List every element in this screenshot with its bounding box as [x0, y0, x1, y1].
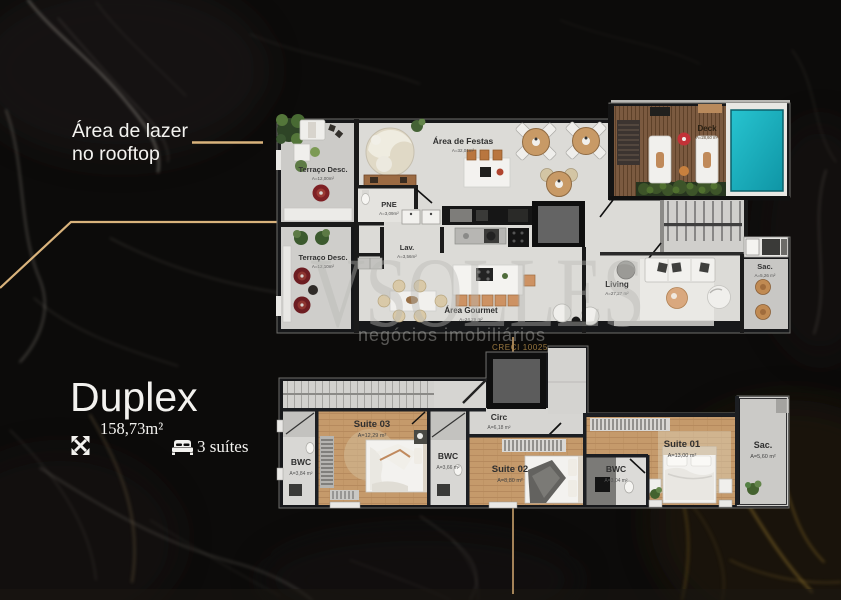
svg-text:Área de lazer: Área de lazer: [72, 119, 188, 142]
svg-text:A=5,26 m²: A=5,26 m²: [755, 273, 776, 278]
svg-text:no rooftop: no rooftop: [72, 143, 160, 165]
svg-text:A=3,84 m²: A=3,84 m²: [289, 471, 313, 477]
svg-text:A=3,04 m²: A=3,04 m²: [604, 478, 628, 484]
svg-text:A=5,60 m²: A=5,60 m²: [750, 454, 776, 460]
svg-text:Sac.: Sac.: [754, 440, 773, 450]
svg-text:Circ: Circ: [491, 412, 508, 422]
svg-text:Deck: Deck: [697, 124, 717, 133]
svg-text:BWC: BWC: [606, 464, 626, 474]
svg-text:BWC: BWC: [438, 451, 458, 461]
svg-text:Sac.: Sac.: [757, 262, 772, 271]
svg-text:A=28,60 m²: A=28,60 m²: [696, 135, 718, 140]
svg-text:CRECI 10025: CRECI 10025: [492, 343, 548, 352]
svg-text:Duplex: Duplex: [70, 374, 198, 420]
svg-text:BWC: BWC: [291, 457, 311, 467]
svg-text:A=13,00 m²: A=13,00 m²: [668, 453, 697, 459]
svg-text:A=32,01m²: A=32,01m²: [452, 148, 475, 153]
svg-text:A=12,00m²: A=12,00m²: [312, 176, 335, 181]
svg-text:A=3,09m²: A=3,09m²: [379, 211, 399, 216]
svg-text:A=12,29 m²: A=12,29 m²: [358, 433, 387, 439]
svg-text:Suite 02: Suite 02: [492, 464, 528, 475]
svg-text:PNE: PNE: [381, 200, 396, 209]
svg-text:158,73m²: 158,73m²: [100, 419, 163, 438]
svg-text:A=3,66 m²: A=3,66 m²: [436, 465, 460, 471]
svg-text:3 suítes: 3 suítes: [197, 437, 248, 456]
svg-text:Terraço Desc.: Terraço Desc.: [298, 165, 347, 174]
svg-text:A=6,18 m²: A=6,18 m²: [487, 425, 511, 431]
svg-text:Área de Festas: Área de Festas: [433, 136, 494, 146]
svg-text:A=8,80 m²: A=8,80 m²: [497, 478, 523, 484]
svg-text:Suite 01: Suite 01: [664, 439, 701, 450]
svg-text:Suite 03: Suite 03: [354, 419, 390, 430]
svg-text:negócios imobiliários: negócios imobiliários: [358, 325, 546, 345]
